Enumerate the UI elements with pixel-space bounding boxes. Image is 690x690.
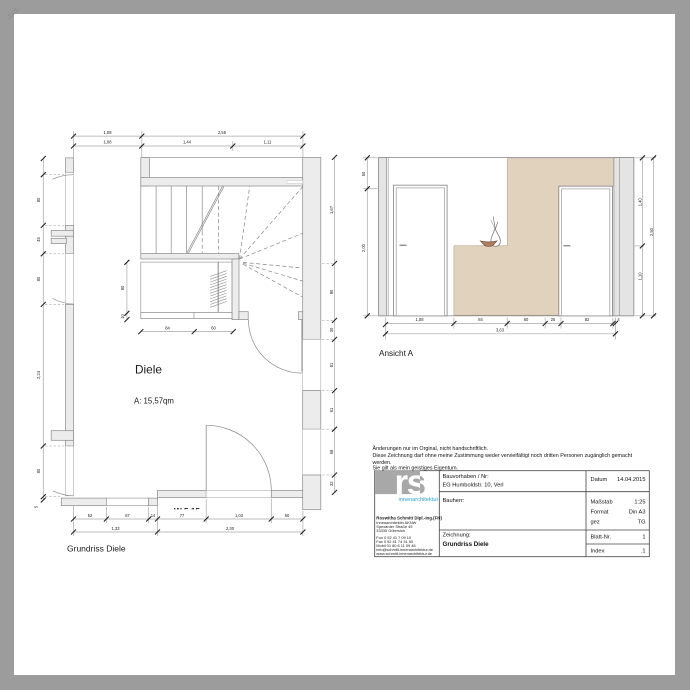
svg-text:77: 77: [180, 513, 185, 518]
svg-text:25: 25: [551, 317, 556, 322]
svg-text:2,50: 2,50: [649, 227, 654, 236]
svg-text:Diele: Diele: [135, 363, 162, 377]
svg-text:Diese Zeichnung darf ohne mein: Diese Zeichnung darf ohne meine Zustimmu…: [373, 453, 633, 459]
svg-text:2,55: 2,55: [218, 130, 227, 135]
svg-text:61: 61: [329, 407, 334, 412]
svg-text:TG: TG: [638, 519, 646, 525]
svg-text:14.04.2015: 14.04.2015: [617, 477, 645, 483]
svg-text:2,24: 2,24: [36, 370, 41, 379]
svg-text:14: 14: [151, 513, 156, 518]
svg-text:80: 80: [120, 285, 125, 290]
svg-text:84: 84: [165, 325, 170, 330]
svg-text:2,30: 2,30: [226, 526, 235, 531]
svg-text:Format: Format: [591, 510, 609, 516]
svg-text:3,63: 3,63: [496, 328, 505, 333]
svg-text:60: 60: [211, 325, 216, 330]
svg-text:Blatt-Nr.: Blatt-Nr.: [591, 534, 612, 540]
svg-text:Zeichnung:: Zeichnung:: [443, 533, 472, 539]
svg-text:2,00: 2,00: [361, 243, 366, 252]
svg-text:Sie gilt als mein geistiges Ei: Sie gilt als mein geistiges Eigentum.: [373, 465, 459, 471]
svg-text:1,40: 1,40: [638, 198, 643, 207]
svg-text:1,08: 1,08: [416, 317, 425, 322]
svg-text:1,03: 1,03: [235, 513, 244, 518]
svg-text:80: 80: [36, 468, 41, 473]
svg-text:30: 30: [329, 327, 334, 332]
svg-text:84: 84: [478, 317, 483, 322]
svg-text:1,44: 1,44: [183, 140, 192, 145]
svg-text:Datum: Datum: [591, 477, 608, 483]
svg-text:1,08: 1,08: [104, 130, 113, 135]
svg-text:Index: Index: [591, 548, 605, 554]
svg-text:82: 82: [585, 317, 590, 322]
svg-text:80: 80: [36, 197, 41, 202]
svg-text:EG Humboldstr. 10, Verl: EG Humboldstr. 10, Verl: [443, 483, 504, 489]
svg-text:52: 52: [88, 513, 93, 518]
svg-text:Grundriss Diele: Grundriss Diele: [67, 544, 126, 554]
svg-text:1,67: 1,67: [329, 205, 334, 214]
svg-text:67: 67: [125, 513, 130, 518]
svg-text:1:25: 1:25: [634, 500, 645, 506]
svg-text:Bauherr:: Bauherr:: [443, 498, 465, 504]
svg-text:80: 80: [36, 276, 41, 281]
svg-text:.1: .1: [641, 548, 646, 554]
svg-text:50: 50: [285, 513, 290, 518]
svg-text:60: 60: [524, 317, 529, 322]
svg-text:81: 81: [329, 362, 334, 367]
svg-text:1,11: 1,11: [264, 140, 272, 145]
svg-text:32: 32: [329, 481, 334, 486]
svg-text:Din A3: Din A3: [629, 510, 646, 516]
svg-text:Ansicht A: Ansicht A: [379, 349, 414, 358]
svg-text:50: 50: [361, 171, 366, 176]
svg-text:33335 Gütersloh: 33335 Gütersloh: [376, 528, 405, 533]
svg-text:Grundriss Diele: Grundriss Diele: [443, 541, 490, 548]
svg-text:45: 45: [36, 237, 41, 242]
svg-text:innenarchitektur: innenarchitektur: [399, 497, 439, 503]
svg-text:www.schmitt-innenarchitektur.d: www.schmitt-innenarchitektur.de: [376, 551, 432, 556]
svg-text:68: 68: [329, 449, 334, 454]
svg-text:1,10: 1,10: [638, 272, 643, 281]
svg-text:1: 1: [642, 534, 645, 540]
svg-text:gez: gez: [591, 519, 600, 525]
svg-text:Bauvorhaben / Nr:: Bauvorhaben / Nr:: [443, 474, 490, 480]
svg-text:Maßstab: Maßstab: [591, 500, 613, 506]
svg-text:1,08: 1,08: [104, 140, 113, 145]
svg-text:A: 15,57qm: A: 15,57qm: [134, 396, 174, 405]
svg-text:10: 10: [120, 314, 125, 319]
svg-text:1,33: 1,33: [112, 526, 121, 531]
svg-text:90: 90: [329, 289, 334, 294]
svg-text:Änderungen nur im Orginal, nic: Änderungen nur im Orginal, nicht handsch…: [373, 445, 489, 452]
